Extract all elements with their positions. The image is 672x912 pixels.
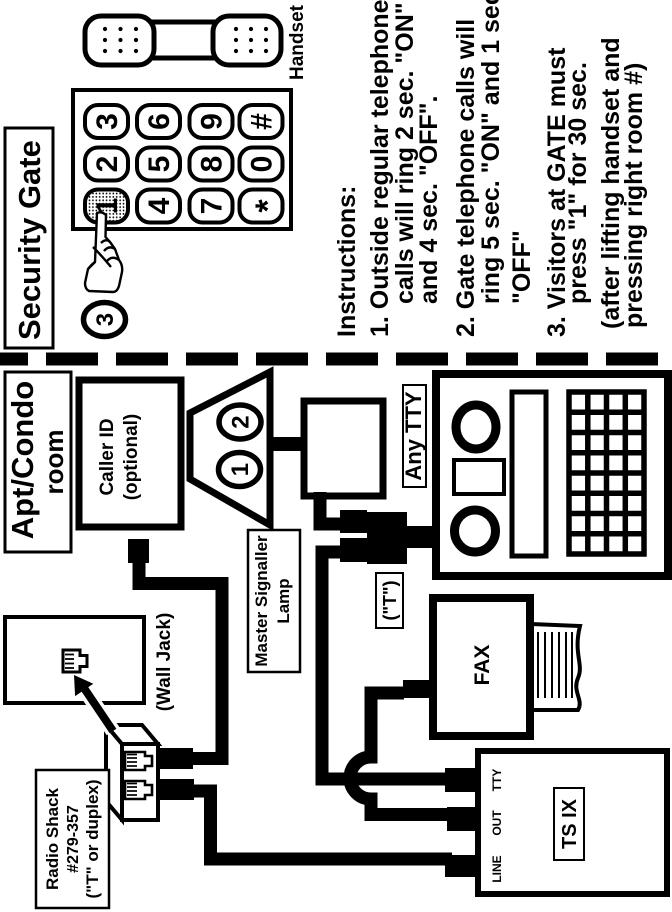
svg-text:8: 8 xyxy=(196,156,229,173)
svg-text:0: 0 xyxy=(246,156,279,173)
svg-text:room: room xyxy=(39,430,69,495)
svg-text:#279-357: #279-357 xyxy=(65,805,82,873)
svg-text:1. Outside regular telephone: 1. Outside regular telephone xyxy=(366,0,394,337)
svg-text:(Wall Jack): (Wall Jack) xyxy=(154,613,175,712)
svg-text:pressing right room #): pressing right room #) xyxy=(620,63,648,328)
svg-text:3: 3 xyxy=(92,313,119,326)
svg-text:1: 1 xyxy=(227,463,254,476)
svg-text:Handset: Handset xyxy=(287,4,308,80)
svg-text:press "1" for 30 sec.: press "1" for 30 sec. xyxy=(564,62,592,304)
svg-text:("T"): ("T") xyxy=(380,580,400,620)
svg-text:2: 2 xyxy=(228,415,255,428)
svg-text:7: 7 xyxy=(196,198,229,215)
svg-text:Caller ID: Caller ID xyxy=(97,418,118,495)
svg-text:LINE: LINE xyxy=(490,855,504,882)
svg-text:#: # xyxy=(246,113,279,130)
svg-text:2: 2 xyxy=(91,156,124,173)
svg-text:and 4 sec. "OFF".: and 4 sec. "OFF". xyxy=(415,96,443,304)
svg-text:Master Signaller: Master Signaller xyxy=(252,535,271,667)
svg-text:Lamp: Lamp xyxy=(274,578,293,623)
svg-text:9: 9 xyxy=(196,113,229,130)
svg-text:Security Gate: Security Gate xyxy=(12,140,47,340)
svg-text:TTY: TTY xyxy=(490,769,504,792)
svg-text:3: 3 xyxy=(91,113,124,130)
svg-text:FAX: FAX xyxy=(471,645,494,686)
svg-text:1: 1 xyxy=(91,198,124,215)
svg-text:Apt/Condo: Apt/Condo xyxy=(5,381,40,539)
svg-text:(optional): (optional) xyxy=(121,414,142,501)
svg-text:2. Gate telephone calls will: 2. Gate telephone calls will xyxy=(452,19,480,337)
svg-text:TS IX: TS IX xyxy=(559,798,581,849)
svg-text:"OFF": "OFF" xyxy=(508,230,536,304)
svg-text:Any TTY: Any TTY xyxy=(401,391,426,481)
svg-text:*: * xyxy=(249,199,287,213)
svg-text:5: 5 xyxy=(143,156,176,173)
svg-text:OUT: OUT xyxy=(490,810,504,836)
svg-text:6: 6 xyxy=(143,113,176,130)
svg-text:4: 4 xyxy=(143,197,176,214)
svg-text:ring 5 sec. "ON" and 1 sec.: ring 5 sec. "ON" and 1 sec. xyxy=(477,0,505,304)
svg-text:("T" or duplex): ("T" or duplex) xyxy=(83,779,102,898)
svg-text:Instructions:: Instructions: xyxy=(333,186,361,337)
svg-text:Radio Shack: Radio Shack xyxy=(43,787,62,890)
